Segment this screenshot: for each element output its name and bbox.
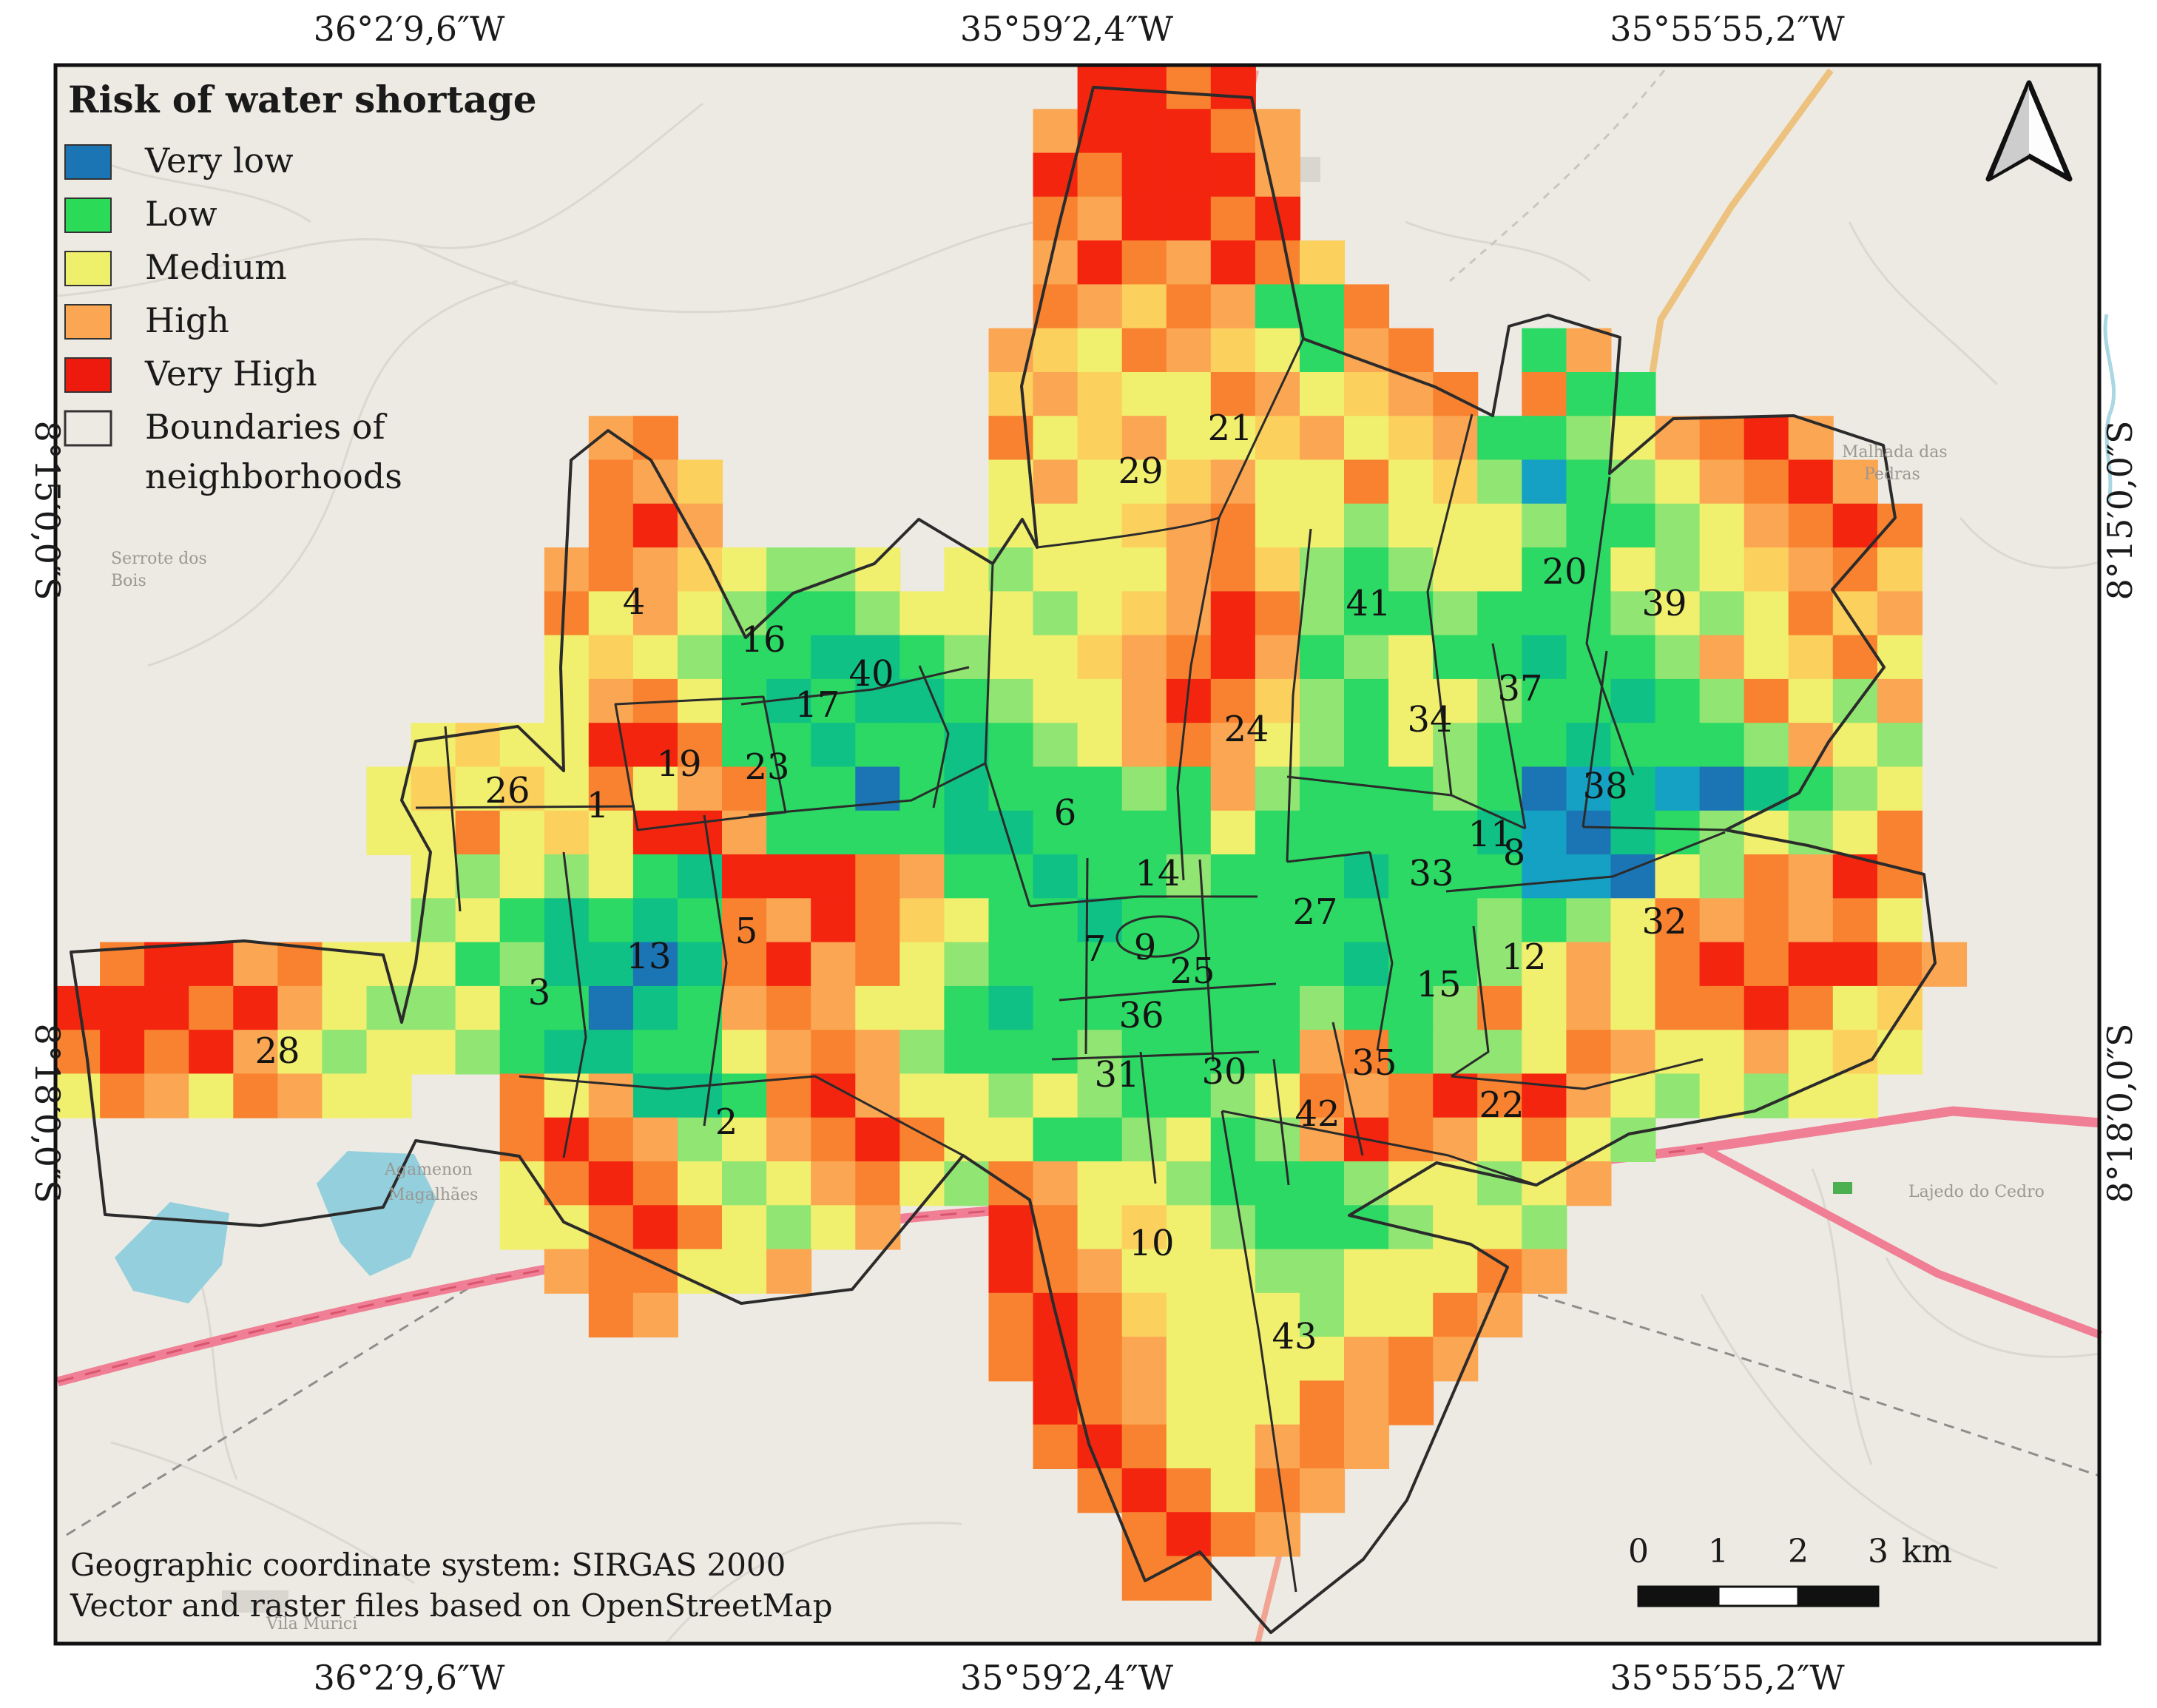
raster-cell (1877, 1030, 1923, 1074)
place-label: Pedras (1864, 465, 1920, 484)
raster-cell (1388, 811, 1434, 855)
raster-cell (589, 504, 634, 548)
raster-cell (1789, 986, 1834, 1030)
raster-cell (1300, 986, 1345, 1030)
neighborhood-label-26: 26 (485, 770, 530, 811)
raster-cell (678, 1249, 723, 1294)
raster-cell (722, 986, 767, 1030)
raster-cell (1344, 767, 1389, 811)
raster-cell (989, 854, 1034, 899)
raster-cell (1744, 767, 1789, 811)
raster-cell (1078, 723, 1123, 767)
raster-cell (1255, 635, 1300, 680)
raster-cell (1211, 854, 1256, 899)
raster-cell (1167, 109, 1212, 153)
raster-cell (1167, 372, 1212, 416)
raster-cell (1122, 1468, 1167, 1513)
raster-cell (1700, 1030, 1745, 1074)
coord-bottom-1: 36°2′9,6″W (314, 1658, 506, 1698)
raster-cell (544, 811, 590, 855)
place-label: Malhada das (1842, 443, 1948, 462)
raster-cell (1211, 811, 1256, 855)
raster-cell (1433, 898, 1478, 942)
raster-cell (1033, 854, 1078, 899)
raster-cell (1211, 1468, 1256, 1513)
raster-cell (633, 1205, 678, 1249)
scale-segment-3 (1798, 1587, 1878, 1606)
raster-cell (1566, 723, 1611, 767)
raster-cell (855, 547, 900, 592)
place-label: Bois (111, 572, 146, 590)
scale-segment-1 (1638, 1587, 1718, 1606)
raster-cell (1700, 942, 1745, 987)
raster-cell (811, 1118, 856, 1162)
raster-cell (1610, 986, 1655, 1030)
raster-cell (1477, 547, 1522, 592)
raster-cell (1522, 460, 1567, 504)
raster-cell (1122, 372, 1167, 416)
neighborhood-label-34: 34 (1407, 699, 1452, 740)
raster-cell (544, 591, 590, 635)
coord-top-2: 35°59′2,4″W (960, 9, 1174, 49)
neighborhood-label-24: 24 (1223, 709, 1269, 750)
scale-label-2: 2 (1788, 1533, 1809, 1570)
neighborhood-label-17: 17 (794, 684, 840, 726)
raster-cell (1700, 547, 1745, 592)
raster-cell (1655, 416, 1701, 460)
raster-cell (1522, 1118, 1567, 1162)
raster-cell (544, 767, 590, 811)
neighborhood-label-43: 43 (1272, 1316, 1317, 1357)
raster-cell (678, 460, 723, 504)
raster-cell (811, 942, 856, 987)
neighborhood-label-40: 40 (848, 653, 894, 695)
raster-cell (277, 1073, 323, 1118)
raster-cell (944, 942, 989, 987)
raster-cell (899, 986, 945, 1030)
coord-bottom-3: 35°55′55,2″W (1610, 1658, 1845, 1698)
raster-cell (1433, 1073, 1478, 1118)
raster-cell (989, 942, 1034, 987)
raster-cell (1477, 1030, 1522, 1074)
raster-cell (1877, 898, 1923, 942)
raster-cell (989, 635, 1034, 680)
raster-cell (722, 547, 767, 592)
raster-cell (1433, 635, 1478, 680)
raster-cell (1122, 65, 1167, 109)
raster-cell (589, 416, 634, 460)
raster-cell (1167, 1468, 1212, 1513)
raster-cell (1877, 942, 1923, 987)
raster-cell (1033, 1073, 1078, 1118)
raster-cell (1211, 328, 1256, 373)
raster-cell (766, 811, 811, 855)
coord-left-1: 8°15′0,0″S (27, 420, 67, 600)
raster-cell (1211, 197, 1256, 241)
raster-cell (1566, 811, 1611, 855)
raster-cell (1255, 460, 1300, 504)
raster-cell (1078, 1205, 1123, 1249)
raster-cell (1255, 1249, 1300, 1294)
raster-cell (1078, 328, 1123, 373)
raster-cell (1300, 416, 1345, 460)
raster-cell (1167, 240, 1212, 285)
raster-cell (1789, 679, 1834, 723)
raster-cell (1433, 1293, 1478, 1337)
raster-cell (1700, 854, 1745, 899)
raster-cell (1211, 1380, 1256, 1425)
raster-cell (1522, 854, 1567, 899)
raster-cell (1122, 547, 1167, 592)
raster-cell (1566, 986, 1611, 1030)
raster-cell (1655, 942, 1701, 987)
raster-cell (1522, 591, 1567, 635)
raster-cell (855, 1205, 900, 1249)
raster-cell (1300, 1380, 1345, 1425)
raster-cell (1388, 591, 1434, 635)
raster-cell (678, 986, 723, 1030)
raster-cell (1388, 1337, 1434, 1381)
raster-cell (1300, 504, 1345, 548)
raster-cell (1078, 284, 1123, 328)
raster-cell (678, 591, 723, 635)
raster-cell (1255, 416, 1300, 460)
raster-cell (899, 679, 945, 723)
raster-cell (1522, 328, 1567, 373)
raster-cell (1167, 65, 1212, 109)
raster-cell (811, 986, 856, 1030)
raster-cell (144, 1030, 189, 1074)
raster-cell (1167, 986, 1212, 1030)
raster-cell (1122, 1293, 1167, 1337)
raster-cell (1789, 854, 1834, 899)
raster-cell (722, 854, 767, 899)
raster-cell (1433, 1337, 1478, 1381)
raster-cell (855, 898, 900, 942)
neighborhood-label-31: 31 (1094, 1054, 1139, 1096)
raster-cell (411, 986, 456, 1030)
raster-cell (589, 986, 634, 1030)
raster-cell (1833, 986, 1878, 1030)
raster-cell (1477, 1293, 1522, 1337)
raster-cell (1167, 1293, 1212, 1337)
raster-cell (1655, 723, 1701, 767)
raster-cell (1344, 1249, 1389, 1294)
neighborhood-label-10: 10 (1129, 1223, 1174, 1264)
neighborhood-label-23: 23 (744, 746, 789, 788)
raster-cell (766, 1118, 811, 1162)
raster-cell (1877, 767, 1923, 811)
raster-cell (1255, 1161, 1300, 1206)
raster-cell (1566, 1073, 1611, 1118)
raster-cell (1211, 460, 1256, 504)
raster-cell (589, 679, 634, 723)
raster-cell (766, 547, 811, 592)
raster-cell (1167, 1512, 1212, 1556)
raster-cell (989, 372, 1034, 416)
raster-cell (989, 1293, 1034, 1337)
raster-cell (722, 1249, 767, 1294)
raster-cell (1833, 1073, 1878, 1118)
raster-cell (944, 1073, 989, 1118)
neighborhood-label-39: 39 (1641, 583, 1687, 624)
raster-cell (1700, 679, 1745, 723)
raster-cell (1211, 767, 1256, 811)
raster-cell (144, 986, 189, 1030)
raster-cell (855, 1118, 900, 1162)
raster-cell (544, 1161, 590, 1206)
raster-cell (1566, 679, 1611, 723)
raster-cell (1700, 635, 1745, 680)
place-label: Lajedo do Cedro (1908, 1183, 2045, 1201)
scale-label-3: 3 (1868, 1533, 1888, 1570)
raster-cell (1167, 197, 1212, 241)
raster-cell (1700, 591, 1745, 635)
raster-cell (855, 723, 900, 767)
raster-cell (1833, 723, 1878, 767)
raster-cell (500, 811, 545, 855)
raster-cell (100, 986, 145, 1030)
raster-cell (1610, 942, 1655, 987)
raster-cell (1122, 1118, 1167, 1162)
neighborhood-label-32: 32 (1641, 901, 1687, 942)
raster-cell (1877, 635, 1923, 680)
legend-swatch-high (65, 305, 111, 339)
raster-cell (1300, 942, 1345, 987)
raster-cell (1344, 1380, 1389, 1425)
raster-cell (1877, 811, 1923, 855)
raster-cell (589, 460, 634, 504)
raster-cell (1078, 372, 1123, 416)
raster-cell (1833, 898, 1878, 942)
raster-cell (322, 986, 367, 1030)
raster-cell (1833, 547, 1878, 592)
raster-cell (1122, 1512, 1167, 1556)
raster-cell (1167, 767, 1212, 811)
raster-cell (678, 547, 723, 592)
neighborhood-label-6: 6 (1054, 792, 1077, 834)
raster-cell (1610, 1030, 1655, 1074)
legend-swatch-medium (65, 252, 111, 286)
raster-cell (989, 1030, 1034, 1074)
raster-cell (1655, 854, 1701, 899)
legend-swatch-very-low (65, 145, 111, 179)
neighborhood-label-4: 4 (623, 581, 646, 623)
raster-cell (1433, 591, 1478, 635)
raster-cell (855, 591, 900, 635)
raster-cell (1211, 1205, 1256, 1249)
raster-cell (1655, 460, 1701, 504)
raster-cell (1744, 942, 1789, 987)
neighborhood-label-14: 14 (1135, 853, 1180, 894)
raster-cell (1433, 1118, 1478, 1162)
raster-cell (233, 986, 278, 1030)
raster-cell (1388, 547, 1434, 592)
raster-cell (1388, 1380, 1434, 1425)
neighborhood-label-15: 15 (1416, 964, 1461, 1005)
raster-cell (1122, 767, 1167, 811)
raster-cell (144, 1073, 189, 1118)
neighborhood-label-5: 5 (735, 911, 758, 952)
raster-cell (456, 986, 501, 1030)
raster-cell (1610, 679, 1655, 723)
raster-cell (1433, 1030, 1478, 1074)
raster-cell (1167, 547, 1212, 592)
raster-cell (1033, 547, 1078, 592)
raster-cell (1388, 1249, 1434, 1294)
raster-cell (1167, 811, 1212, 855)
neighborhood-label-42: 42 (1294, 1093, 1340, 1135)
raster-cell (1655, 767, 1701, 811)
neighborhood-label-36: 36 (1118, 995, 1164, 1036)
raster-cell (722, 1205, 767, 1249)
raster-cell (1388, 1293, 1434, 1337)
raster-cell (1344, 460, 1389, 504)
raster-cell (811, 898, 856, 942)
raster-cell (1344, 942, 1389, 987)
raster-cell (1033, 1249, 1078, 1294)
raster-cell (1566, 1161, 1611, 1206)
coord-top-1: 36°2′9,6″W (314, 9, 506, 49)
raster-cell (722, 1161, 767, 1206)
coord-bottom-2: 35°59′2,4″W (960, 1658, 1174, 1698)
raster-cell (989, 547, 1034, 592)
coord-top-3: 35°55′55,2″W (1610, 9, 1845, 49)
raster-cell (1078, 1293, 1123, 1337)
raster-cell (1033, 504, 1078, 548)
raster-cell (1744, 416, 1789, 460)
raster-cell (989, 898, 1034, 942)
raster-cell (811, 1161, 856, 1206)
raster-cell (1877, 547, 1923, 592)
raster-cell (899, 811, 945, 855)
raster-cell (1522, 723, 1567, 767)
raster-cell (855, 986, 900, 1030)
raster-cell (233, 1073, 278, 1118)
raster-cell (1522, 1030, 1567, 1074)
neighborhood-label-25: 25 (1169, 951, 1215, 992)
raster-cell (1033, 1030, 1078, 1074)
raster-cell (1789, 942, 1834, 987)
raster-cell (1122, 197, 1167, 241)
legend-label-low: Low (145, 194, 217, 234)
raster-cell (411, 1030, 456, 1074)
raster-cell (544, 679, 590, 723)
raster-cell (766, 986, 811, 1030)
raster-cell (1078, 240, 1123, 285)
scale-segment-2 (1718, 1587, 1798, 1606)
raster-cell (678, 635, 723, 680)
neighborhood-label-12: 12 (1501, 936, 1546, 978)
legend-label-medium: Medium (145, 247, 287, 287)
raster-cell (1122, 1425, 1167, 1469)
raster-cell (456, 942, 501, 987)
raster-cell (1122, 153, 1167, 198)
coord-right-2: 8°18′0,0″S (2100, 1023, 2140, 1203)
raster-cell (1566, 416, 1611, 460)
raster-cell (456, 1030, 501, 1074)
raster-cell (1033, 460, 1078, 504)
raster-cell (1344, 635, 1389, 680)
raster-cell (1700, 1073, 1745, 1118)
raster-cell (989, 1205, 1034, 1249)
raster-cell (1167, 328, 1212, 373)
raster-cell (322, 1030, 367, 1074)
raster-cell (1255, 240, 1300, 285)
scale-unit: km (1902, 1533, 1952, 1570)
raster-cell (1433, 416, 1478, 460)
raster-cell (1211, 942, 1256, 987)
raster-cell (811, 723, 856, 767)
raster-cell (1033, 328, 1078, 373)
raster-cell (1877, 591, 1923, 635)
raster-cell (633, 1118, 678, 1162)
raster-cell (989, 1118, 1034, 1162)
raster-cell (1211, 591, 1256, 635)
raster-cell (1344, 1161, 1389, 1206)
raster-cell (1167, 460, 1212, 504)
raster-cell (1300, 284, 1345, 328)
raster-cell (1833, 504, 1878, 548)
raster-cell (1388, 504, 1434, 548)
raster-cell (1211, 547, 1256, 592)
neighborhood-label-1: 1 (587, 785, 610, 826)
raster-cell (1167, 723, 1212, 767)
raster-cell (411, 898, 456, 942)
raster-cell (1655, 679, 1701, 723)
place-label: Agamenon (384, 1161, 473, 1179)
raster-cell (277, 986, 323, 1030)
raster-cell (944, 591, 989, 635)
raster-cell (1255, 153, 1300, 198)
neighborhood-label-37: 37 (1497, 668, 1542, 709)
raster-cell (811, 767, 856, 811)
raster-cell (1344, 416, 1389, 460)
raster-cell (1744, 635, 1789, 680)
raster-cell (1211, 240, 1256, 285)
raster-cell (1078, 153, 1123, 198)
legend-swatch-low (65, 198, 111, 232)
raster-cell (766, 1030, 811, 1074)
raster-cell (189, 1030, 234, 1074)
raster-cell (589, 723, 634, 767)
attribution-line2: Vector and raster files based on OpenStr… (70, 1587, 833, 1624)
raster-cell (989, 986, 1034, 1030)
raster-cell (1344, 1293, 1389, 1337)
legend-label-boundaries-2: neighborhoods (145, 456, 402, 496)
raster-cell (1522, 1205, 1567, 1249)
raster-cell (1833, 767, 1878, 811)
raster-cell (1700, 986, 1745, 1030)
raster-cell (1122, 328, 1167, 373)
raster-cell (1078, 679, 1123, 723)
raster-cell (1122, 591, 1167, 635)
raster-cell (1078, 986, 1123, 1030)
raster-cell (1789, 1030, 1834, 1074)
raster-cell (1344, 284, 1389, 328)
raster-cell (1522, 811, 1567, 855)
raster-cell (944, 898, 989, 942)
raster-cell (766, 898, 811, 942)
raster-cell (633, 811, 678, 855)
neighborhood-label-3: 3 (528, 972, 551, 1013)
raster-cell (589, 854, 634, 899)
raster-cell (1877, 723, 1923, 767)
raster-cell (1610, 811, 1655, 855)
raster-cell (811, 591, 856, 635)
raster-cell (1122, 1380, 1167, 1425)
raster-cell (1033, 1118, 1078, 1162)
